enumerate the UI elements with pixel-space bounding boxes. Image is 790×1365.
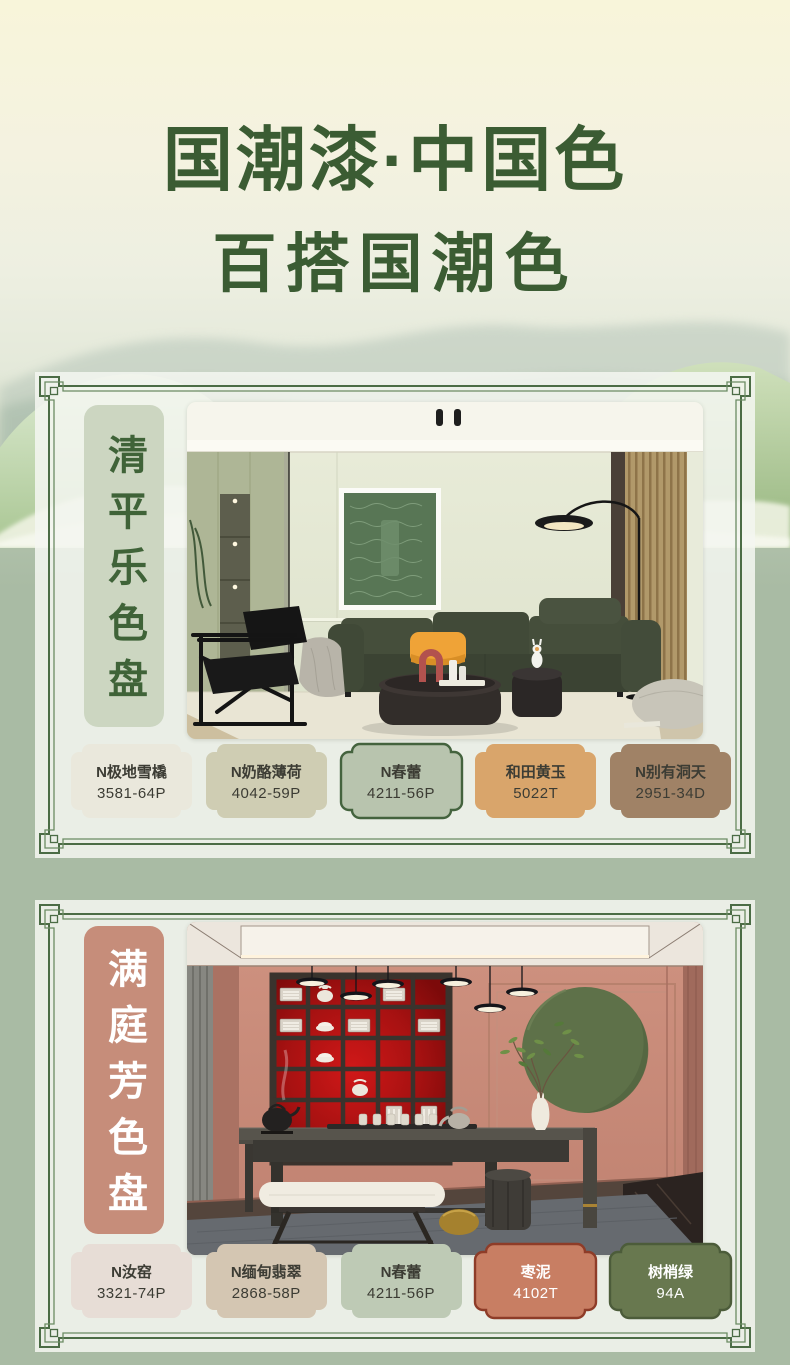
color-swatch: N春蕾 4211-56P [341, 1244, 462, 1318]
poster-root: 国潮漆·中国色 百搭国潮色 清平乐色盘 [0, 0, 790, 1365]
swatch-color-name: N春蕾 [381, 1261, 422, 1282]
swatch-color-code: 3581-64P [97, 785, 166, 802]
color-swatch: N缅甸翡翠 2868-58P [206, 1244, 327, 1318]
tea-room-photo [187, 922, 703, 1255]
swatch-color-code: 4211-56P [367, 785, 435, 802]
swatch-color-name: N汝窑 [111, 1261, 152, 1282]
swatch-color-name: N奶酪薄荷 [231, 761, 302, 782]
swatch-color-name: N春蕾 [381, 761, 422, 782]
swatch-color-code: 2868-58P [232, 1285, 301, 1302]
swatch-color-code: 4211-56P [367, 1285, 435, 1302]
palette-label-qingpingle: 清平乐色盘 [84, 405, 164, 727]
swatch-color-code: 3321-74P [97, 1285, 166, 1302]
title-line-1: 国潮漆·中国色 [0, 124, 790, 198]
color-swatch: 树梢绿 94A [610, 1244, 731, 1318]
swatch-color-code: 2951-34D [636, 785, 706, 802]
swatch-row-qingpingle: N极地雪橇 3581-64P N奶酪薄荷 4042-59P N春蕾 4211-5… [71, 744, 731, 818]
title-line-2: 百搭国潮色 [0, 231, 790, 298]
swatch-color-code: 94A [656, 1285, 684, 1302]
swatch-row-mantingfang: N汝窑 3321-74P N缅甸翡翠 2868-58P N春蕾 4211-56P… [71, 1244, 731, 1318]
living-room-photo [187, 402, 703, 739]
color-swatch: N奶酪薄荷 4042-59P [206, 744, 327, 818]
living-room-illustration [187, 402, 703, 739]
swatch-color-name: N别有洞天 [635, 761, 706, 782]
swatch-color-code: 4042-59P [232, 785, 301, 802]
palette-label-mantingfang: 满庭芳色盘 [84, 926, 164, 1234]
color-swatch: 和田黄玉 5022T [475, 744, 596, 818]
swatch-color-name: 树梢绿 [648, 1261, 693, 1282]
swatch-color-name: N极地雪橇 [96, 761, 167, 782]
palette-card-qingpingle: 清平乐色盘 [35, 372, 755, 858]
tea-room-illustration [187, 922, 703, 1255]
palette-label-text: 满庭芳色盘 [104, 932, 144, 1228]
color-swatch: N汝窑 3321-74P [71, 1244, 192, 1318]
color-swatch: N别有洞天 2951-34D [610, 744, 731, 818]
swatch-color-code: 5022T [513, 785, 558, 802]
color-swatch: N春蕾 4211-56P [341, 744, 462, 818]
color-swatch: 枣泥 4102T [475, 1244, 596, 1318]
swatch-color-code: 4102T [513, 1285, 558, 1302]
swatch-color-name: N缅甸翡翠 [231, 1261, 302, 1282]
palette-card-mantingfang: 满庭芳色盘 [35, 900, 755, 1352]
swatch-color-name: 和田黄玉 [506, 761, 566, 782]
color-swatch: N极地雪橇 3581-64P [71, 744, 192, 818]
palette-label-text: 清平乐色盘 [104, 418, 144, 714]
poster-title: 国潮漆·中国色 百搭国潮色 [0, 124, 790, 298]
swatch-color-name: 枣泥 [521, 1261, 551, 1282]
